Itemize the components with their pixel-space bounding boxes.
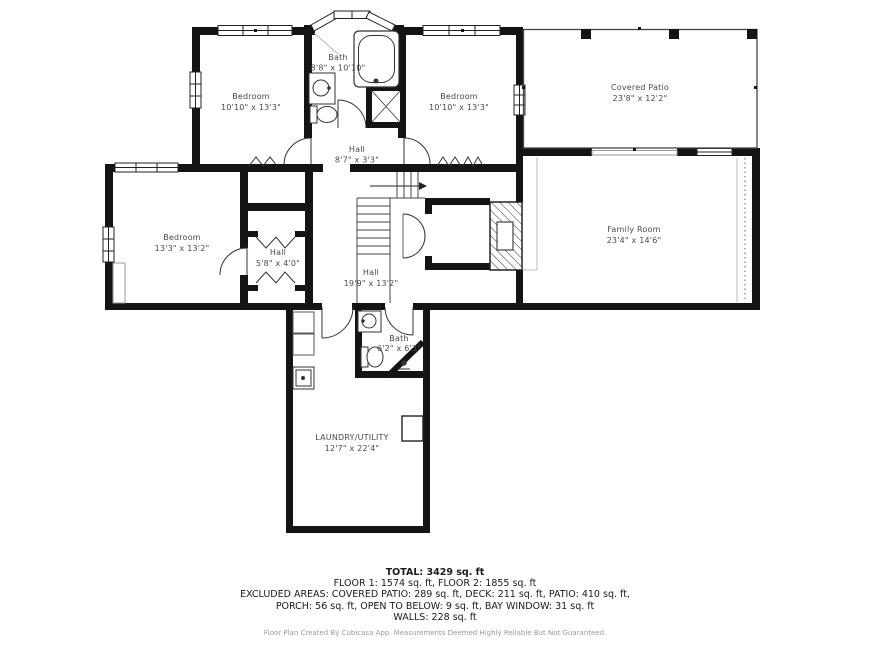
room-label-hall-main: Hall [363,268,379,277]
stairs-direction-arrow [419,182,427,190]
floor-plan-page: Bath 8'8" x 10'10" Bedroom 10'10" x 13'3… [0,0,870,653]
summary-floors: FLOOR 1: 1574 sq. ft, FLOOR 2: 1855 sq. … [0,578,870,589]
room-dims-bath-upper: 8'8" x 10'10" [311,64,366,73]
toilet [310,106,317,123]
summary-excluded-areas: EXCLUDED AREAS: COVERED PATIO: 289 sq. f… [0,589,870,600]
room-label-patio: Covered Patio [611,83,669,92]
summary-excluded-areas-cont: PORCH: 56 sq. ft, OPEN TO BELOW: 9 sq. f… [0,601,870,612]
room-label-bedroom-left: Bedroom [163,233,201,242]
area-summary: TOTAL: 3429 sq. ft FLOOR 1: 1574 sq. ft,… [0,567,870,623]
room-dims-laundry: 12'7" x 22'4" [325,444,380,453]
shower-head [402,361,406,365]
sliding-door [592,148,677,155]
room-dims-hall-main: 19'9" x 13'2" [344,279,399,288]
floor-plan-drawing: Bath 8'8" x 10'10" Bedroom 10'10" x 13'3… [0,0,870,560]
cabinet [402,416,423,441]
room-label-bedroom-tl: Bedroom [232,92,270,101]
room-label-bath-lower: Bath [389,334,408,343]
room-dims-bedroom-left: 13'3" x 13'2" [155,244,210,253]
furniture [113,263,125,303]
fireplace [490,202,522,270]
room-dims-hall-small: 5'8" x 4'0" [256,259,300,268]
room-dims-bedroom-tl: 10'10" x 13'3" [221,103,281,112]
washer [293,312,314,333]
dryer [293,334,314,355]
room-label-laundry: LAUNDRY/UTILITY [315,433,388,442]
room-label-hall-upper: Hall [349,145,365,154]
room-label-family-room: Family Room [607,225,660,234]
room-dims-bedroom-tr: 10'10" x 13'3" [429,103,489,112]
room-label-bedroom-tr: Bedroom [440,92,478,101]
room-label-bath-upper: Bath [328,53,347,62]
room-dims-patio: 23'8" x 12'2" [613,94,668,103]
room-label-hall-small: Hall [270,248,286,257]
room-dims-family-room: 23'4" x 14'6" [607,236,662,245]
disclaimer-note: Floor Plan Created By Cubicasa App. Meas… [0,629,870,637]
room-dims-bath-lower: 6'2" x 6'3" [377,344,421,353]
summary-total: TOTAL: 3429 sq. ft [0,567,870,578]
summary-walls: WALLS: 228 sq. ft [0,612,870,623]
room-dims-hall-upper: 8'7" x 3'3" [335,156,379,165]
